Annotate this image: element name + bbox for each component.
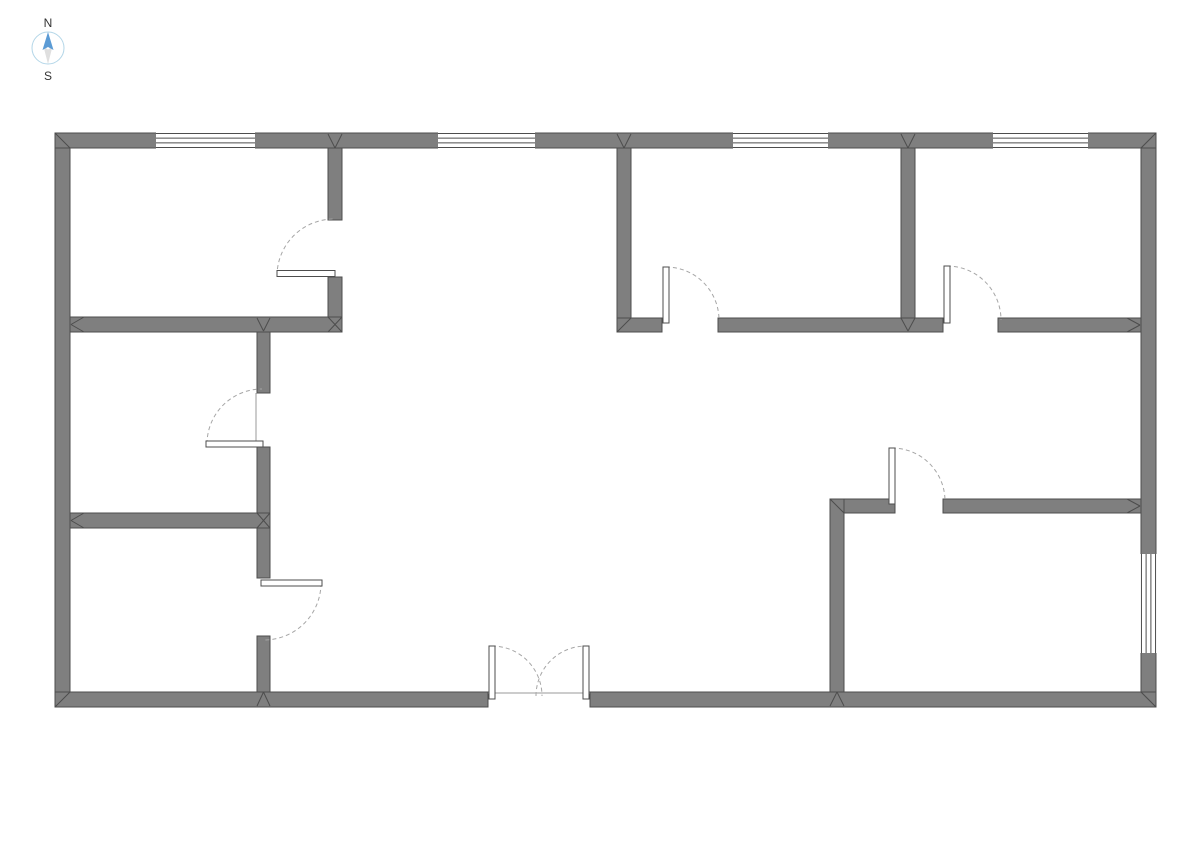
compass-north-needle-icon bbox=[43, 32, 54, 50]
door-swing-arc bbox=[207, 389, 262, 444]
door-leaf bbox=[277, 271, 335, 277]
door-leaf bbox=[944, 266, 950, 323]
floor-plan-canvas: N S bbox=[0, 0, 1191, 842]
wall-segment bbox=[257, 636, 270, 692]
wall-segment bbox=[70, 513, 270, 528]
window bbox=[733, 133, 828, 149]
door-swing-arc bbox=[492, 646, 542, 696]
wall-segment bbox=[70, 317, 342, 332]
door-swing-arc bbox=[666, 267, 719, 320]
wall-segment bbox=[257, 332, 270, 393]
door-leaf bbox=[663, 267, 669, 323]
compass-rose: N S bbox=[0, 0, 96, 96]
compass-north-label: N bbox=[44, 16, 53, 30]
wall-segment bbox=[328, 148, 342, 220]
wall-segment bbox=[617, 148, 631, 318]
door-swing-arc bbox=[264, 583, 321, 640]
door-leaf bbox=[261, 580, 322, 586]
compass-south-label: S bbox=[44, 69, 52, 83]
door-leaf bbox=[889, 448, 895, 504]
door-swing-arc bbox=[892, 448, 945, 501]
wall-segment bbox=[55, 692, 488, 707]
door-leaf bbox=[489, 646, 495, 699]
floor-plan-drawing bbox=[0, 0, 1191, 842]
door-swing-arc bbox=[947, 266, 1001, 320]
door-leaf bbox=[583, 646, 589, 699]
wall-segment bbox=[718, 318, 943, 332]
door-swing-arc bbox=[277, 219, 334, 276]
window bbox=[993, 133, 1088, 149]
wall-segment bbox=[943, 499, 1141, 513]
wall-segment bbox=[901, 148, 915, 318]
door-swing-arc bbox=[536, 646, 586, 696]
wall-segment bbox=[830, 499, 844, 692]
wall-segment bbox=[55, 148, 70, 692]
window bbox=[438, 133, 535, 149]
wall-segment bbox=[998, 318, 1141, 332]
compass-south-needle-icon bbox=[44, 47, 53, 65]
window bbox=[1141, 554, 1157, 653]
window bbox=[156, 133, 255, 149]
wall-segment bbox=[590, 692, 1156, 707]
door-leaf bbox=[206, 441, 263, 447]
